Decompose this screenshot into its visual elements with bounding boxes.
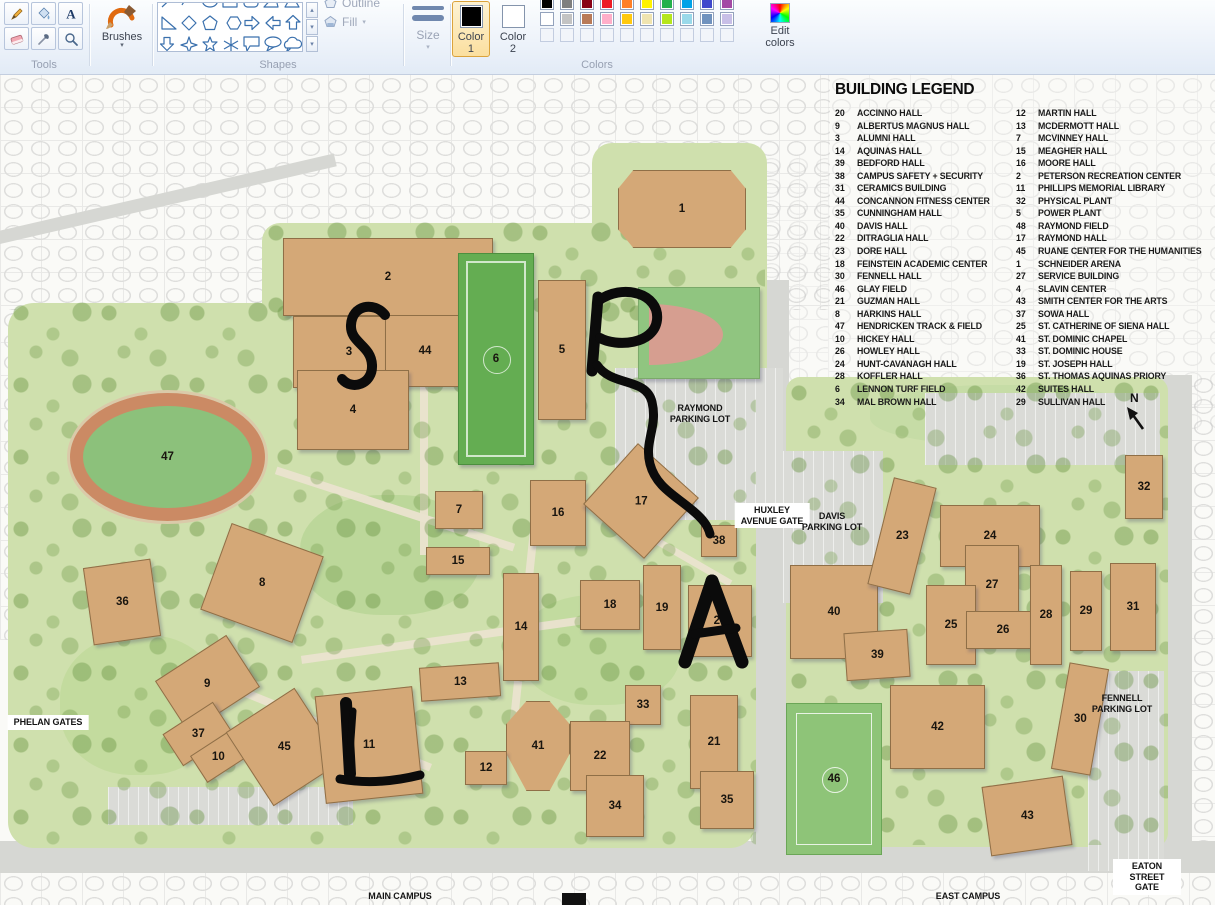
legend-entry: 4SLAVIN CENTER — [1016, 283, 1214, 296]
paint-canvas[interactable]: 1234445648473687161738151418192013339371… — [0, 75, 1215, 905]
legend-entry: 14AQUINAS HALL — [835, 145, 1016, 158]
tools-group-label: Tools — [0, 59, 88, 71]
legend-right-column: 12MARTIN HALL 13MCDERMOTT HALL 7MCVINNEY… — [1016, 107, 1214, 408]
svg-text:A: A — [66, 6, 76, 21]
shuttle-icon — [562, 893, 586, 905]
palette-swatch[interactable] — [680, 12, 694, 26]
color1-button[interactable]: Color1 — [452, 1, 490, 57]
compass-north-label: N — [1130, 391, 1139, 405]
legend-entry: 11PHILLIPS MEMORIAL LIBRARY — [1016, 182, 1214, 195]
legend-entry: 45RUANE CENTER FOR THE HUMANITIES — [1016, 245, 1214, 258]
palette-swatch[interactable] — [640, 0, 654, 10]
chevron-down-icon: ▾ — [120, 43, 124, 48]
color2-label-num: 2 — [510, 43, 516, 55]
map-label: EAST CAMPUS — [936, 891, 1000, 902]
palette-swatch[interactable] — [660, 0, 674, 10]
legend-entry: 3ALUMNI HALL — [835, 132, 1016, 145]
size-label: Size — [405, 28, 451, 42]
colors-group-label: Colors — [452, 59, 742, 71]
legend-entry: 6LENNON TURF FIELD — [835, 383, 1016, 396]
legend-entry: 39BEDFORD HALL — [835, 157, 1016, 170]
legend-entry: 8HARKINS HALL — [835, 308, 1016, 321]
legend-entry: 22DITRAGLIA HALL — [835, 232, 1016, 245]
brush-icon — [104, 2, 140, 30]
legend-entry: 26HOWLEY HALL — [835, 345, 1016, 358]
fill-label: Fill — [342, 15, 357, 29]
palette-swatch-empty[interactable] — [560, 28, 574, 42]
shapes-scroll-down[interactable]: ▾ — [306, 19, 318, 35]
palette-swatch-empty[interactable] — [720, 28, 734, 42]
map-label: EATON STREET GATE — [1113, 859, 1181, 895]
palette-swatch[interactable] — [540, 12, 554, 26]
legend-entry: 25ST. CATHERINE OF SIENA HALL — [1016, 320, 1214, 333]
legend-entry: 5POWER PLANT — [1016, 207, 1214, 220]
map-label: DAVIS PARKING LOT — [802, 511, 862, 532]
shapes-gallery[interactable] — [157, 2, 303, 52]
legend-entry: 12MARTIN HALL — [1016, 107, 1214, 120]
color1-label: Color — [458, 31, 484, 43]
legend-entry: 7MCVINNEY HALL — [1016, 132, 1214, 145]
pencil-icon — [9, 6, 25, 22]
legend-entry: 23DORE HALL — [835, 245, 1016, 258]
legend-entry: 48RAYMOND FIELD — [1016, 220, 1214, 233]
legend-entry: 27SERVICE BUILDING — [1016, 270, 1214, 283]
legend-entry: 38CAMPUS SAFETY + SECURITY — [835, 170, 1016, 183]
ribbon-group-tools: A Tools — [0, 0, 88, 74]
pencil-tool[interactable] — [4, 2, 29, 25]
legend-entry: 33ST. DOMINIC HOUSE — [1016, 345, 1214, 358]
ribbon-group-shapes: ▴ ▾ ▾ Outline Fill ▾ Shapes — [154, 0, 402, 74]
shape-outline-button[interactable]: Outline — [324, 0, 400, 12]
text-tool[interactable]: A — [58, 2, 83, 25]
ribbon-group-brushes: Brushes ▾ — [90, 0, 152, 74]
legend-entry: 15MEAGHER HALL — [1016, 145, 1214, 158]
magnifier-icon — [63, 31, 79, 47]
palette-swatch-empty[interactable] — [680, 28, 694, 42]
palette-swatch[interactable] — [720, 0, 734, 10]
eraser-icon — [9, 31, 25, 47]
shapes-expand-gallery[interactable]: ▾ — [306, 36, 318, 52]
legend-entry: 21GUZMAN HALL — [835, 295, 1016, 308]
palette-swatch[interactable] — [660, 12, 674, 26]
legend-entry: 32PHYSICAL PLANT — [1016, 195, 1214, 208]
legend-entry: 1SCHNEIDER ARENA — [1016, 258, 1214, 271]
building-legend: BUILDING LEGEND 20ACCINNO HALL 9ALBERTUS… — [828, 79, 1214, 408]
palette-swatch[interactable] — [580, 12, 594, 26]
palette-swatch[interactable] — [600, 0, 614, 10]
palette-swatch-empty[interactable] — [540, 28, 554, 42]
palette-swatch[interactable] — [540, 0, 554, 10]
eyedropper-icon — [36, 31, 52, 47]
size-button[interactable]: Size ▾ — [405, 0, 449, 74]
shape-icons — [158, 2, 303, 52]
map-label: RAYMOND PARKING LOT — [670, 403, 730, 424]
palette-swatch-empty[interactable] — [660, 28, 674, 42]
text-icon: A — [63, 6, 79, 22]
legend-entry: 18FEINSTEIN ACADEMIC CENTER — [835, 258, 1016, 271]
palette-swatch-empty[interactable] — [700, 28, 714, 42]
legend-entry: 2PETERSON RECREATION CENTER — [1016, 170, 1214, 183]
paint-ribbon: A Tools B — [0, 0, 1215, 75]
legend-entry: 16MOORE HALL — [1016, 157, 1214, 170]
legend-entry: 36ST. THOMAS AQUINAS PRIORY — [1016, 370, 1214, 383]
legend-entry: 30FENNELL HALL — [835, 270, 1016, 283]
map-label: FENNELL PARKING LOT — [1092, 693, 1152, 714]
outline-label: Outline — [342, 0, 380, 10]
palette-swatch[interactable] — [620, 0, 634, 10]
group-divider — [403, 4, 404, 66]
legend-entry: 29SULLIVAN HALL — [1016, 396, 1214, 409]
palette-swatch[interactable] — [680, 0, 694, 10]
fill-tool[interactable] — [31, 2, 56, 25]
brushes-button[interactable]: Brushes ▾ — [96, 1, 148, 57]
color-picker-tool[interactable] — [31, 27, 56, 50]
palette-swatch[interactable] — [700, 0, 714, 10]
edit-colors-label2: colors — [765, 37, 794, 49]
legend-entry: 47HENDRICKEN TRACK & FIELD — [835, 320, 1016, 333]
legend-entry: 46GLAY FIELD — [835, 283, 1016, 296]
legend-entry: 9ALBERTUS MAGNUS HALL — [835, 120, 1016, 133]
palette-swatch[interactable] — [560, 0, 574, 10]
legend-entry: 20ACCINNO HALL — [835, 107, 1016, 120]
group-divider — [152, 4, 153, 66]
legend-entry: 34MAL BROWN HALL — [835, 396, 1016, 409]
legend-title: BUILDING LEGEND — [835, 81, 1214, 99]
legend-entry: 10HICKEY HALL — [835, 333, 1016, 346]
palette-swatch[interactable] — [620, 12, 634, 26]
shapes-scrollbar: ▴ ▾ ▾ — [306, 2, 318, 52]
color2-button[interactable]: Color2 — [494, 1, 532, 57]
palette-swatch[interactable] — [600, 12, 614, 26]
ribbon-group-size: Size ▾ — [405, 0, 449, 74]
magnifier-tool[interactable] — [58, 27, 83, 50]
group-divider — [450, 4, 451, 66]
legend-entry: 31CERAMICS BUILDING — [835, 182, 1016, 195]
shapes-scroll-up[interactable]: ▴ — [306, 2, 318, 18]
legend-entry: 35CUNNINGHAM HALL — [835, 207, 1016, 220]
palette-swatch[interactable] — [580, 0, 594, 10]
color1-label-num: 1 — [468, 43, 474, 55]
legend-entry: 44CONCANNON FITNESS CENTER — [835, 195, 1016, 208]
legend-entry: 17RAYMOND HALL — [1016, 232, 1214, 245]
shape-fill-button[interactable]: Fill ▾ — [324, 12, 400, 31]
shapes-group-label: Shapes — [154, 59, 402, 71]
fill-icon — [324, 15, 337, 28]
map-label: MAIN CAMPUS — [368, 891, 431, 902]
palette-swatch[interactable] — [560, 12, 574, 26]
chevron-down-icon: ▾ — [405, 43, 451, 51]
legend-entry: 41ST. DOMINIC CHAPEL — [1016, 333, 1214, 346]
palette-swatch-empty[interactable] — [580, 28, 594, 42]
map-label: HUXLEY AVENUE GATE — [735, 503, 810, 528]
legend-entry: 28KOFFLER HALL — [835, 370, 1016, 383]
legend-entry: 42SUITES HALL — [1016, 383, 1214, 396]
chevron-down-icon: ▾ — [362, 18, 366, 26]
legend-entry: 19ST. JOSEPH HALL — [1016, 358, 1214, 371]
palette-swatch[interactable] — [720, 12, 734, 26]
legend-left-column: 20ACCINNO HALL 9ALBERTUS MAGNUS HALL 3AL… — [835, 107, 1016, 408]
edit-colors-icon — [770, 3, 790, 23]
palette-swatch-empty[interactable] — [600, 28, 614, 42]
palette-swatch-empty[interactable] — [640, 28, 654, 42]
color2-swatch — [502, 5, 525, 28]
map-label: PHELAN GATES — [8, 715, 89, 730]
color-palette — [540, 0, 740, 44]
edit-colors-button[interactable]: Editcolors — [757, 1, 803, 57]
legend-entry: 13MCDERMOTT HALL — [1016, 120, 1214, 133]
edit-colors-label: Edit — [771, 25, 790, 37]
palette-swatch[interactable] — [700, 12, 714, 26]
legend-entry: 43SMITH CENTER FOR THE ARTS — [1016, 295, 1214, 308]
size-icon — [412, 6, 444, 21]
palette-swatch[interactable] — [640, 12, 654, 26]
outline-icon — [324, 0, 337, 9]
fill-bucket-icon — [36, 6, 52, 22]
ribbon-group-colors: Color1 Color2 Editcolors — [452, 0, 812, 74]
palette-swatch-empty[interactable] — [620, 28, 634, 42]
color1-swatch — [460, 5, 483, 28]
legend-entry: 40DAVIS HALL — [835, 220, 1016, 233]
compass-arrow-icon — [1124, 405, 1150, 433]
legend-entry: 37SOWA HALL — [1016, 308, 1214, 321]
legend-entry: 24HUNT-CAVANAGH HALL — [835, 358, 1016, 371]
paint-window: A Tools B — [0, 0, 1215, 905]
color2-label: Color — [500, 31, 526, 43]
eraser-tool[interactable] — [4, 27, 29, 50]
